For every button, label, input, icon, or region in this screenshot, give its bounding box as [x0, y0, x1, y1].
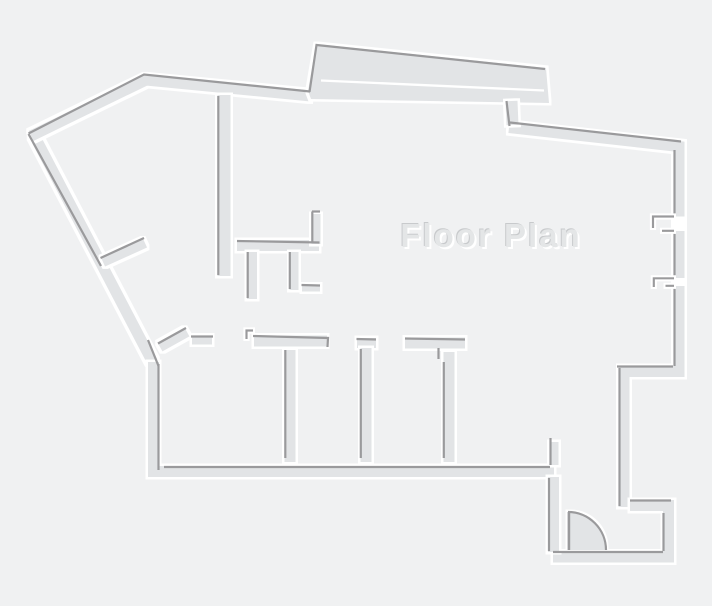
plan-title: Floor Plan: [368, 219, 614, 253]
wall-step-connector: [512, 101, 513, 125]
edge-header-c: [405, 339, 465, 340]
floor-plan-page: { "title": { "text": "Floor Plan" }, "pa…: [0, 0, 712, 606]
edge-header-b: [357, 339, 377, 340]
window-opening-1: [672, 217, 687, 232]
edge-kitchen-horizontal: [237, 241, 320, 243]
edge-kitchen-foot: [302, 285, 321, 286]
floor-plan-svg: [0, 0, 712, 606]
window-opening-2: [672, 278, 687, 286]
